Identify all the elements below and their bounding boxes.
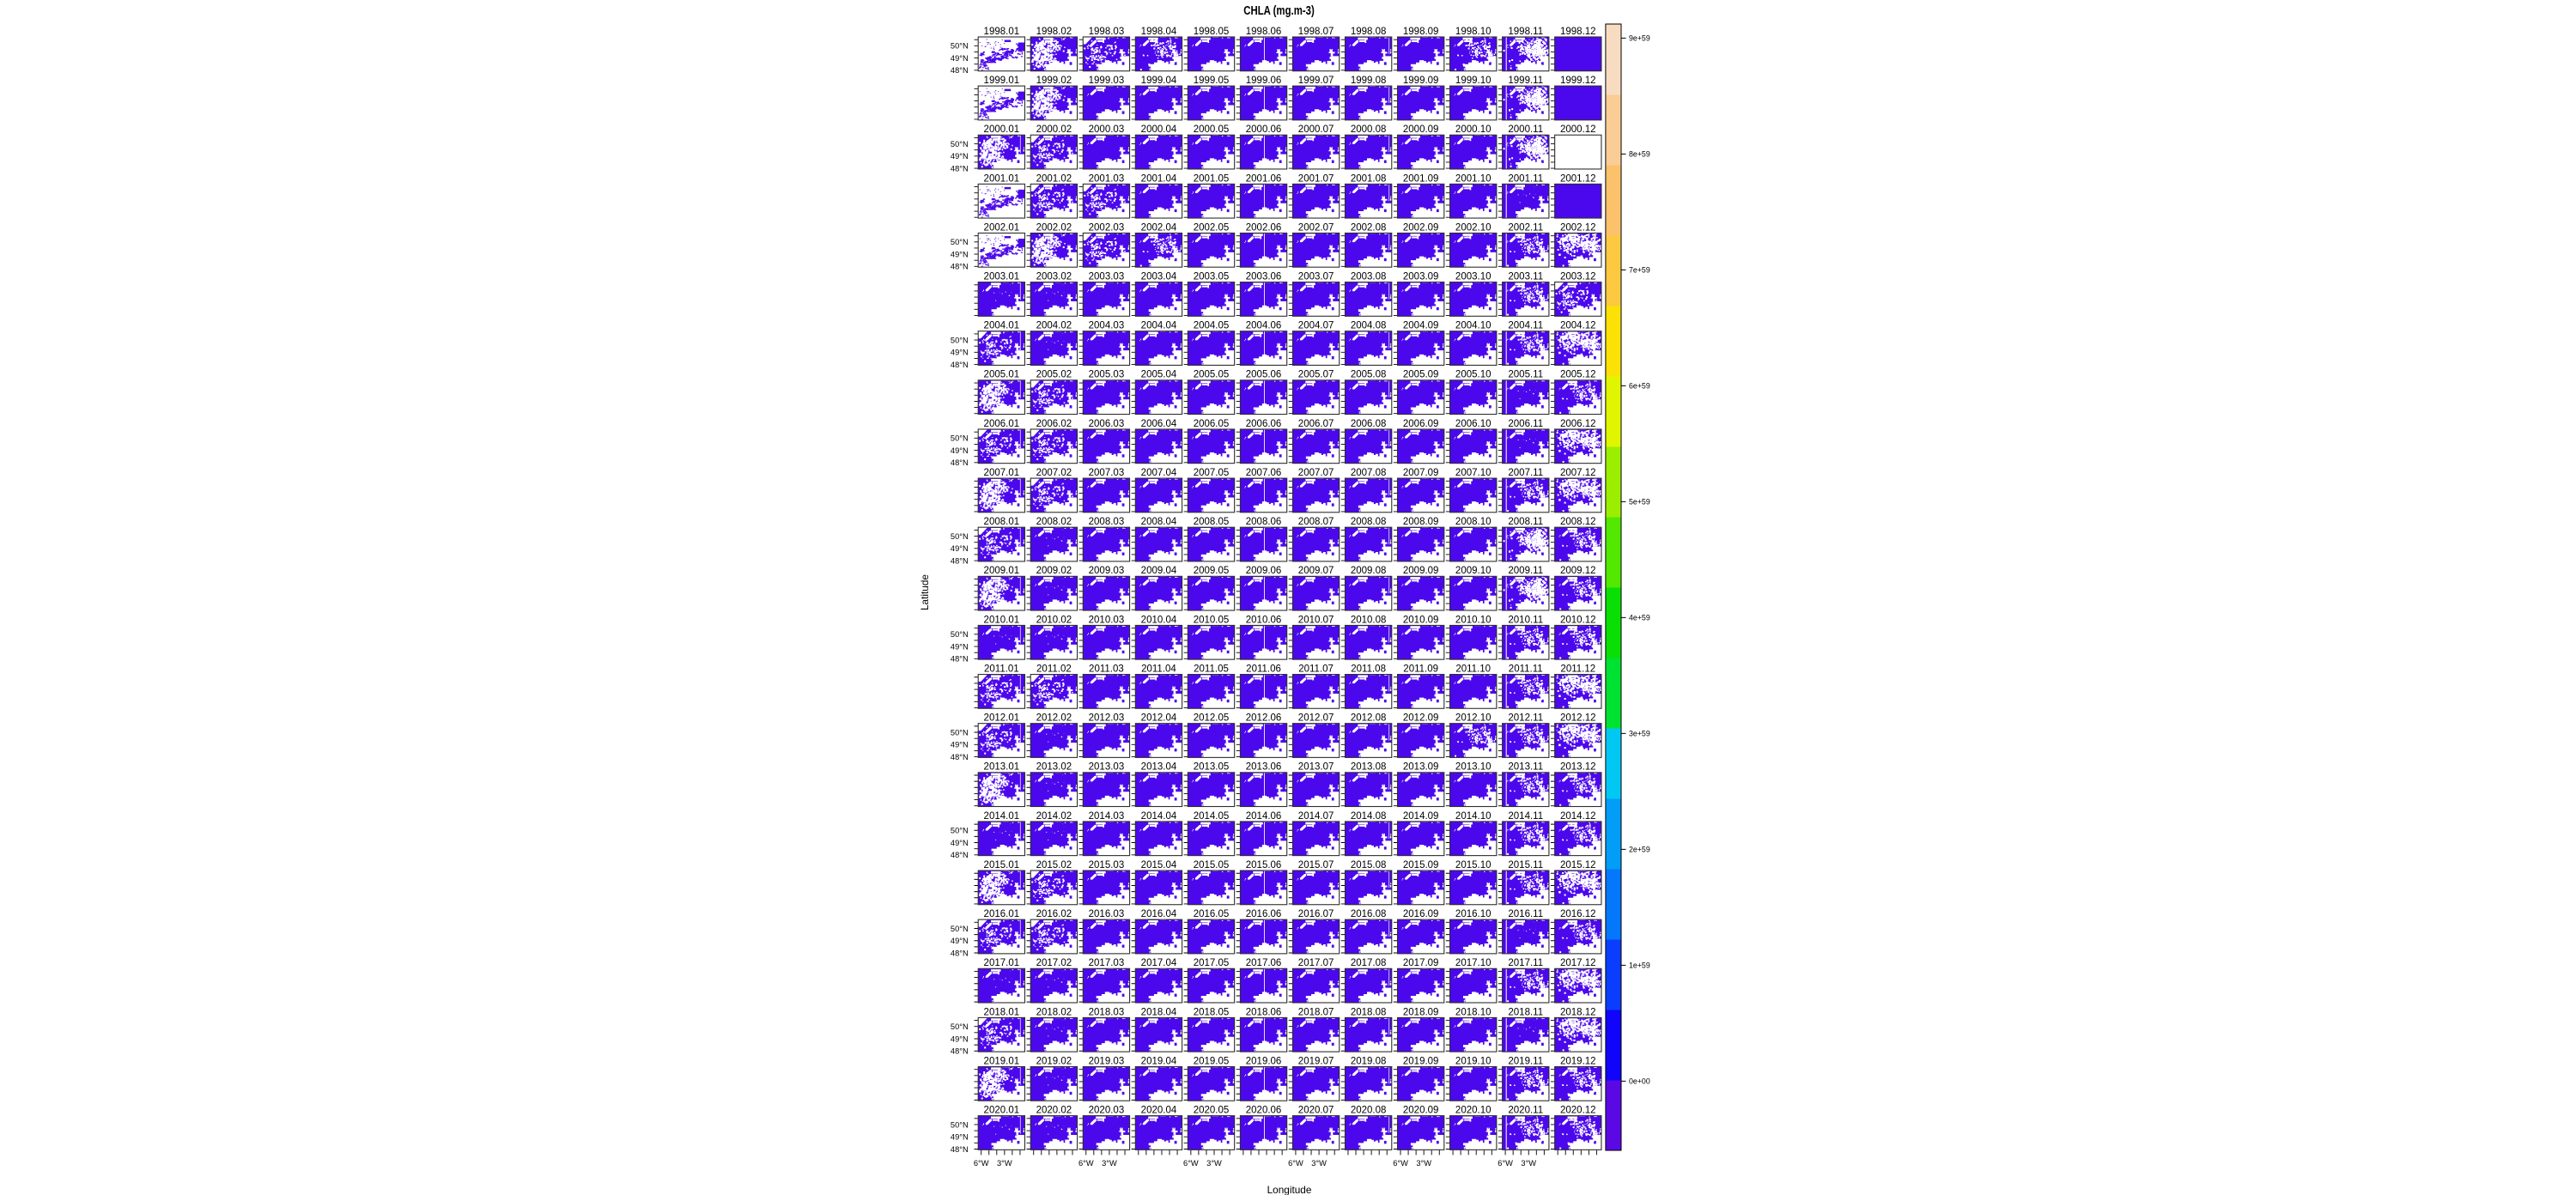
svg-text:2012.07: 2012.07 bbox=[1298, 713, 1334, 724]
svg-text:2011.01: 2011.01 bbox=[984, 664, 1019, 674]
svg-text:2011.04: 2011.04 bbox=[1141, 664, 1176, 674]
svg-text:2017.07: 2017.07 bbox=[1298, 958, 1334, 968]
svg-text:2006.02: 2006.02 bbox=[1036, 419, 1072, 429]
svg-text:2002.05: 2002.05 bbox=[1194, 222, 1230, 233]
svg-text:2008.07: 2008.07 bbox=[1298, 517, 1334, 527]
svg-text:2005.03: 2005.03 bbox=[1089, 370, 1125, 380]
svg-text:2006.03: 2006.03 bbox=[1089, 419, 1125, 429]
svg-text:1999.01: 1999.01 bbox=[984, 76, 1020, 86]
svg-text:2002.04: 2002.04 bbox=[1141, 222, 1177, 233]
svg-text:50°N: 50°N bbox=[951, 532, 969, 541]
svg-text:2006.07: 2006.07 bbox=[1298, 419, 1334, 429]
svg-text:2016.01: 2016.01 bbox=[984, 909, 1020, 919]
svg-text:0e+00: 0e+00 bbox=[1629, 1077, 1650, 1086]
svg-text:2012.05: 2012.05 bbox=[1194, 713, 1230, 724]
svg-text:2003.04: 2003.04 bbox=[1141, 272, 1177, 282]
svg-text:2010.05: 2010.05 bbox=[1194, 615, 1230, 625]
svg-text:2014.07: 2014.07 bbox=[1298, 811, 1334, 822]
svg-text:2000.01: 2000.01 bbox=[984, 124, 1020, 135]
svg-text:1999.12: 1999.12 bbox=[1560, 76, 1596, 86]
svg-text:1998.04: 1998.04 bbox=[1141, 27, 1177, 37]
svg-text:2017.01: 2017.01 bbox=[984, 958, 1020, 968]
svg-text:48°N: 48°N bbox=[951, 164, 969, 173]
svg-text:2009.01: 2009.01 bbox=[984, 566, 1020, 576]
svg-text:2005.10: 2005.10 bbox=[1455, 370, 1492, 380]
svg-text:2010.09: 2010.09 bbox=[1403, 615, 1439, 625]
svg-text:2013.10: 2013.10 bbox=[1455, 762, 1492, 773]
svg-text:2016.10: 2016.10 bbox=[1455, 909, 1492, 919]
svg-text:2003.01: 2003.01 bbox=[984, 272, 1020, 282]
svg-text:2007.04: 2007.04 bbox=[1141, 468, 1177, 478]
svg-text:2005.08: 2005.08 bbox=[1351, 370, 1387, 380]
svg-text:48°N: 48°N bbox=[951, 655, 969, 664]
svg-text:2001.07: 2001.07 bbox=[1298, 173, 1334, 184]
svg-text:48°N: 48°N bbox=[951, 458, 969, 467]
svg-text:2011.02: 2011.02 bbox=[1036, 664, 1072, 674]
svg-text:2004.08: 2004.08 bbox=[1351, 321, 1387, 331]
svg-text:2016.07: 2016.07 bbox=[1298, 909, 1334, 919]
svg-text:2004.02: 2004.02 bbox=[1036, 321, 1072, 331]
svg-text:2011.12: 2011.12 bbox=[1560, 664, 1595, 674]
svg-text:1999.03: 1999.03 bbox=[1089, 76, 1125, 86]
svg-text:2e+59: 2e+59 bbox=[1629, 846, 1650, 854]
svg-text:1998.05: 1998.05 bbox=[1194, 27, 1230, 37]
svg-text:2016.04: 2016.04 bbox=[1141, 909, 1177, 919]
svg-text:2019.05: 2019.05 bbox=[1194, 1056, 1230, 1066]
svg-text:2011.05: 2011.05 bbox=[1194, 664, 1229, 674]
svg-text:2012.02: 2012.02 bbox=[1036, 713, 1072, 724]
svg-text:2013.06: 2013.06 bbox=[1246, 762, 1282, 773]
svg-text:2006.11: 2006.11 bbox=[1508, 419, 1543, 429]
svg-text:2014.06: 2014.06 bbox=[1246, 811, 1282, 822]
svg-text:49°N: 49°N bbox=[951, 250, 969, 258]
svg-text:2019.10: 2019.10 bbox=[1455, 1056, 1492, 1066]
svg-text:2002.06: 2002.06 bbox=[1246, 222, 1282, 233]
svg-text:2012.01: 2012.01 bbox=[984, 713, 1020, 724]
svg-text:2007.10: 2007.10 bbox=[1455, 468, 1492, 478]
svg-text:1999.06: 1999.06 bbox=[1246, 76, 1282, 86]
svg-text:2001.05: 2001.05 bbox=[1194, 173, 1230, 184]
svg-text:2002.01: 2002.01 bbox=[984, 222, 1020, 233]
svg-text:2007.02: 2007.02 bbox=[1036, 468, 1072, 478]
svg-text:2015.08: 2015.08 bbox=[1351, 860, 1387, 870]
svg-text:2009.04: 2009.04 bbox=[1141, 566, 1177, 576]
svg-text:2010.11: 2010.11 bbox=[1508, 615, 1543, 625]
svg-text:1999.10: 1999.10 bbox=[1455, 76, 1492, 86]
svg-text:3e+59: 3e+59 bbox=[1629, 730, 1650, 738]
svg-text:2011.09: 2011.09 bbox=[1403, 664, 1438, 674]
svg-text:2012.11: 2012.11 bbox=[1508, 713, 1543, 724]
svg-text:49°N: 49°N bbox=[951, 1034, 969, 1043]
svg-text:49°N: 49°N bbox=[951, 1133, 969, 1142]
svg-text:50°N: 50°N bbox=[951, 434, 969, 443]
svg-text:2006.12: 2006.12 bbox=[1560, 419, 1596, 429]
svg-text:2011.08: 2011.08 bbox=[1351, 664, 1386, 674]
svg-text:1999.02: 1999.02 bbox=[1036, 76, 1072, 86]
svg-text:2020.04: 2020.04 bbox=[1141, 1106, 1177, 1116]
svg-text:2014.05: 2014.05 bbox=[1194, 811, 1230, 822]
svg-text:2009.07: 2009.07 bbox=[1298, 566, 1334, 576]
svg-text:2014.11: 2014.11 bbox=[1508, 811, 1543, 822]
svg-text:2001.06: 2001.06 bbox=[1246, 173, 1282, 184]
svg-text:2020.10: 2020.10 bbox=[1455, 1106, 1492, 1116]
svg-text:2016.06: 2016.06 bbox=[1246, 909, 1282, 919]
svg-text:2000.11: 2000.11 bbox=[1508, 124, 1543, 135]
svg-text:2009.06: 2009.06 bbox=[1246, 566, 1282, 576]
svg-text:2004.01: 2004.01 bbox=[984, 321, 1020, 331]
svg-text:2001.04: 2001.04 bbox=[1141, 173, 1177, 184]
svg-text:2019.03: 2019.03 bbox=[1089, 1056, 1125, 1066]
svg-text:2014.04: 2014.04 bbox=[1141, 811, 1177, 822]
svg-text:2004.03: 2004.03 bbox=[1089, 321, 1125, 331]
svg-text:3°W: 3°W bbox=[1311, 1159, 1327, 1168]
svg-text:2008.02: 2008.02 bbox=[1036, 517, 1072, 527]
svg-text:2010.02: 2010.02 bbox=[1036, 615, 1072, 625]
svg-text:2016.02: 2016.02 bbox=[1036, 909, 1072, 919]
svg-text:2012.12: 2012.12 bbox=[1560, 713, 1596, 724]
svg-text:3°W: 3°W bbox=[1416, 1159, 1431, 1168]
svg-text:2001.12: 2001.12 bbox=[1560, 173, 1596, 184]
svg-text:2017.03: 2017.03 bbox=[1089, 958, 1125, 968]
svg-text:2007.11: 2007.11 bbox=[1508, 468, 1543, 478]
svg-text:2018.02: 2018.02 bbox=[1036, 1007, 1072, 1017]
svg-text:2020.11: 2020.11 bbox=[1508, 1106, 1543, 1116]
svg-text:2017.02: 2017.02 bbox=[1036, 958, 1072, 968]
svg-text:2012.03: 2012.03 bbox=[1089, 713, 1125, 724]
svg-text:2019.08: 2019.08 bbox=[1351, 1056, 1387, 1066]
svg-text:2018.10: 2018.10 bbox=[1455, 1007, 1492, 1017]
svg-text:49°N: 49°N bbox=[951, 642, 969, 651]
svg-text:2020.03: 2020.03 bbox=[1089, 1106, 1125, 1116]
svg-text:2014.08: 2014.08 bbox=[1351, 811, 1387, 822]
svg-text:2018.09: 2018.09 bbox=[1403, 1007, 1439, 1017]
svg-text:2018.03: 2018.03 bbox=[1089, 1007, 1125, 1017]
svg-text:2004.09: 2004.09 bbox=[1403, 321, 1439, 331]
svg-text:2015.12: 2015.12 bbox=[1560, 860, 1596, 870]
svg-text:2007.12: 2007.12 bbox=[1560, 468, 1596, 478]
svg-text:2014.01: 2014.01 bbox=[984, 811, 1020, 822]
svg-text:2013.08: 2013.08 bbox=[1351, 762, 1387, 773]
svg-text:2008.04: 2008.04 bbox=[1141, 517, 1177, 527]
svg-text:2009.10: 2009.10 bbox=[1455, 566, 1492, 576]
svg-text:50°N: 50°N bbox=[951, 630, 969, 639]
svg-text:2010.06: 2010.06 bbox=[1246, 615, 1282, 625]
svg-text:2015.07: 2015.07 bbox=[1298, 860, 1334, 870]
svg-text:2004.07: 2004.07 bbox=[1298, 321, 1334, 331]
svg-text:2013.01: 2013.01 bbox=[984, 762, 1020, 773]
svg-text:2007.08: 2007.08 bbox=[1351, 468, 1387, 478]
svg-text:48°N: 48°N bbox=[951, 66, 969, 75]
svg-text:2016.08: 2016.08 bbox=[1351, 909, 1387, 919]
svg-text:2015.04: 2015.04 bbox=[1141, 860, 1177, 870]
svg-text:2016.05: 2016.05 bbox=[1194, 909, 1230, 919]
svg-text:2007.05: 2007.05 bbox=[1194, 468, 1230, 478]
svg-text:2006.09: 2006.09 bbox=[1403, 419, 1439, 429]
svg-text:2015.10: 2015.10 bbox=[1455, 860, 1492, 870]
svg-text:2002.02: 2002.02 bbox=[1036, 222, 1072, 233]
svg-text:2005.12: 2005.12 bbox=[1560, 370, 1596, 380]
svg-text:2006.06: 2006.06 bbox=[1246, 419, 1282, 429]
svg-text:2001.11: 2001.11 bbox=[1508, 173, 1543, 184]
svg-text:2013.12: 2013.12 bbox=[1560, 762, 1596, 773]
svg-text:50°N: 50°N bbox=[951, 925, 969, 933]
svg-text:2000.08: 2000.08 bbox=[1351, 124, 1387, 135]
svg-text:1999.04: 1999.04 bbox=[1141, 76, 1177, 86]
svg-text:2000.05: 2000.05 bbox=[1194, 124, 1230, 135]
svg-text:2010.12: 2010.12 bbox=[1560, 615, 1596, 625]
svg-text:2014.03: 2014.03 bbox=[1089, 811, 1125, 822]
svg-text:2013.07: 2013.07 bbox=[1298, 762, 1334, 773]
svg-text:2007.03: 2007.03 bbox=[1089, 468, 1125, 478]
svg-text:2018.12: 2018.12 bbox=[1560, 1007, 1596, 1017]
svg-text:2009.05: 2009.05 bbox=[1194, 566, 1230, 576]
svg-text:2015.01: 2015.01 bbox=[984, 860, 1020, 870]
svg-text:2009.03: 2009.03 bbox=[1089, 566, 1125, 576]
svg-text:2020.12: 2020.12 bbox=[1560, 1106, 1596, 1116]
svg-text:2010.08: 2010.08 bbox=[1351, 615, 1387, 625]
svg-text:48°N: 48°N bbox=[951, 949, 969, 957]
svg-text:2017.10: 2017.10 bbox=[1455, 958, 1492, 968]
svg-text:2003.08: 2003.08 bbox=[1351, 272, 1387, 282]
svg-text:2009.12: 2009.12 bbox=[1560, 566, 1596, 576]
svg-text:2013.11: 2013.11 bbox=[1508, 762, 1543, 773]
svg-text:2013.09: 2013.09 bbox=[1403, 762, 1439, 773]
svg-text:2004.04: 2004.04 bbox=[1141, 321, 1177, 331]
svg-text:2004.12: 2004.12 bbox=[1560, 321, 1596, 331]
svg-text:2001.08: 2001.08 bbox=[1351, 173, 1387, 184]
svg-text:6°W: 6°W bbox=[1183, 1159, 1199, 1168]
svg-text:2005.11: 2005.11 bbox=[1508, 370, 1543, 380]
svg-text:2010.10: 2010.10 bbox=[1455, 615, 1492, 625]
svg-text:2007.07: 2007.07 bbox=[1298, 468, 1334, 478]
svg-text:2003.06: 2003.06 bbox=[1246, 272, 1282, 282]
svg-text:2004.06: 2004.06 bbox=[1246, 321, 1282, 331]
svg-text:2014.09: 2014.09 bbox=[1403, 811, 1439, 822]
svg-text:2020.09: 2020.09 bbox=[1403, 1106, 1439, 1116]
svg-text:1998.12: 1998.12 bbox=[1560, 27, 1596, 37]
svg-text:2008.03: 2008.03 bbox=[1089, 517, 1125, 527]
svg-text:2008.09: 2008.09 bbox=[1403, 517, 1439, 527]
svg-text:48°N: 48°N bbox=[951, 556, 969, 565]
svg-text:2004.05: 2004.05 bbox=[1194, 321, 1230, 331]
svg-text:2001.01: 2001.01 bbox=[984, 173, 1020, 184]
svg-text:6°W: 6°W bbox=[1288, 1159, 1303, 1168]
svg-text:2012.08: 2012.08 bbox=[1351, 713, 1387, 724]
svg-text:1998.06: 1998.06 bbox=[1246, 27, 1282, 37]
svg-text:2013.05: 2013.05 bbox=[1194, 762, 1230, 773]
svg-text:2005.07: 2005.07 bbox=[1298, 370, 1334, 380]
svg-text:2000.04: 2000.04 bbox=[1141, 124, 1177, 135]
svg-text:2001.10: 2001.10 bbox=[1455, 173, 1492, 184]
svg-text:2000.12: 2000.12 bbox=[1560, 124, 1596, 135]
svg-text:2017.04: 2017.04 bbox=[1141, 958, 1177, 968]
svg-text:2014.02: 2014.02 bbox=[1036, 811, 1072, 822]
svg-text:2008.06: 2008.06 bbox=[1246, 517, 1282, 527]
svg-text:2015.03: 2015.03 bbox=[1089, 860, 1125, 870]
svg-text:3°W: 3°W bbox=[1102, 1159, 1117, 1168]
svg-text:2007.09: 2007.09 bbox=[1403, 468, 1439, 478]
svg-text:2010.07: 2010.07 bbox=[1298, 615, 1334, 625]
svg-text:50°N: 50°N bbox=[951, 140, 969, 149]
svg-text:2020.05: 2020.05 bbox=[1194, 1106, 1230, 1116]
svg-text:49°N: 49°N bbox=[951, 152, 969, 161]
svg-text:3°W: 3°W bbox=[1521, 1159, 1536, 1168]
svg-text:2019.09: 2019.09 bbox=[1403, 1056, 1439, 1066]
svg-text:6°W: 6°W bbox=[1078, 1159, 1094, 1168]
svg-text:2011.06: 2011.06 bbox=[1246, 664, 1281, 674]
svg-text:2017.05: 2017.05 bbox=[1194, 958, 1230, 968]
svg-text:2005.05: 2005.05 bbox=[1194, 370, 1230, 380]
svg-text:2017.06: 2017.06 bbox=[1246, 958, 1282, 968]
svg-text:49°N: 49°N bbox=[951, 544, 969, 553]
svg-text:2020.06: 2020.06 bbox=[1246, 1106, 1282, 1116]
svg-text:2005.01: 2005.01 bbox=[984, 370, 1020, 380]
svg-text:2019.11: 2019.11 bbox=[1508, 1056, 1543, 1066]
svg-text:2020.08: 2020.08 bbox=[1351, 1106, 1387, 1116]
svg-text:2015.11: 2015.11 bbox=[1508, 860, 1543, 870]
svg-text:2004.11: 2004.11 bbox=[1508, 321, 1543, 331]
svg-text:2018.05: 2018.05 bbox=[1194, 1007, 1230, 1017]
svg-text:2008.01: 2008.01 bbox=[984, 517, 1020, 527]
svg-text:49°N: 49°N bbox=[951, 839, 969, 847]
svg-text:9e+59: 9e+59 bbox=[1629, 34, 1650, 43]
svg-text:2015.02: 2015.02 bbox=[1036, 860, 1072, 870]
svg-text:2016.03: 2016.03 bbox=[1089, 909, 1125, 919]
svg-text:2003.02: 2003.02 bbox=[1036, 272, 1072, 282]
svg-text:2003.10: 2003.10 bbox=[1455, 272, 1492, 282]
svg-text:50°N: 50°N bbox=[951, 728, 969, 737]
svg-text:2017.08: 2017.08 bbox=[1351, 958, 1387, 968]
svg-text:3°W: 3°W bbox=[997, 1159, 1012, 1168]
svg-text:1998.02: 1998.02 bbox=[1036, 27, 1072, 37]
svg-text:2014.10: 2014.10 bbox=[1455, 811, 1492, 822]
svg-text:50°N: 50°N bbox=[951, 336, 969, 344]
svg-text:2009.02: 2009.02 bbox=[1036, 566, 1072, 576]
svg-text:2018.08: 2018.08 bbox=[1351, 1007, 1387, 1017]
svg-text:49°N: 49°N bbox=[951, 446, 969, 455]
svg-text:49°N: 49°N bbox=[951, 349, 969, 357]
svg-text:2009.11: 2009.11 bbox=[1508, 566, 1543, 576]
svg-text:2004.10: 2004.10 bbox=[1455, 321, 1492, 331]
svg-text:50°N: 50°N bbox=[951, 1022, 969, 1031]
svg-text:2013.03: 2013.03 bbox=[1089, 762, 1125, 773]
svg-text:2000.06: 2000.06 bbox=[1246, 124, 1282, 135]
svg-text:2003.11: 2003.11 bbox=[1508, 272, 1543, 282]
svg-text:2000.10: 2000.10 bbox=[1455, 124, 1492, 135]
svg-text:2018.06: 2018.06 bbox=[1246, 1007, 1282, 1017]
svg-text:50°N: 50°N bbox=[951, 238, 969, 246]
svg-text:2010.04: 2010.04 bbox=[1141, 615, 1177, 625]
svg-text:2016.12: 2016.12 bbox=[1560, 909, 1596, 919]
svg-text:2019.06: 2019.06 bbox=[1246, 1056, 1282, 1066]
svg-text:1999.05: 1999.05 bbox=[1194, 76, 1230, 86]
svg-text:2019.04: 2019.04 bbox=[1141, 1056, 1177, 1066]
svg-text:1999.07: 1999.07 bbox=[1298, 76, 1334, 86]
svg-text:2019.02: 2019.02 bbox=[1036, 1056, 1072, 1066]
svg-text:2008.08: 2008.08 bbox=[1351, 517, 1387, 527]
svg-text:2012.10: 2012.10 bbox=[1455, 713, 1492, 724]
svg-text:49°N: 49°N bbox=[951, 937, 969, 945]
svg-text:2020.07: 2020.07 bbox=[1298, 1106, 1334, 1116]
svg-text:5e+59: 5e+59 bbox=[1629, 498, 1650, 507]
svg-text:48°N: 48°N bbox=[951, 1145, 969, 1154]
svg-text:7e+59: 7e+59 bbox=[1629, 266, 1650, 275]
svg-text:6°W: 6°W bbox=[1393, 1159, 1408, 1168]
svg-text:4e+59: 4e+59 bbox=[1629, 614, 1650, 622]
svg-text:CHLA (mg.m-3): CHLA (mg.m-3) bbox=[1243, 4, 1315, 18]
svg-text:2018.11: 2018.11 bbox=[1508, 1007, 1543, 1017]
svg-text:2012.09: 2012.09 bbox=[1403, 713, 1439, 724]
svg-text:2002.09: 2002.09 bbox=[1403, 222, 1439, 233]
svg-text:2018.01: 2018.01 bbox=[984, 1007, 1020, 1017]
svg-text:2020.02: 2020.02 bbox=[1036, 1106, 1072, 1116]
svg-text:2019.12: 2019.12 bbox=[1560, 1056, 1596, 1066]
svg-text:2001.09: 2001.09 bbox=[1403, 173, 1439, 184]
svg-text:50°N: 50°N bbox=[951, 1120, 969, 1129]
svg-text:2017.11: 2017.11 bbox=[1508, 958, 1543, 968]
svg-text:1998.03: 1998.03 bbox=[1089, 27, 1125, 37]
svg-text:1999.08: 1999.08 bbox=[1351, 76, 1387, 86]
svg-text:2007.01: 2007.01 bbox=[984, 468, 1020, 478]
svg-text:2011.03: 2011.03 bbox=[1089, 664, 1124, 674]
svg-text:2000.02: 2000.02 bbox=[1036, 124, 1072, 135]
svg-text:50°N: 50°N bbox=[951, 827, 969, 835]
svg-text:6°W: 6°W bbox=[974, 1159, 989, 1168]
svg-text:2008.05: 2008.05 bbox=[1194, 517, 1230, 527]
svg-text:2005.02: 2005.02 bbox=[1036, 370, 1072, 380]
svg-text:2020.01: 2020.01 bbox=[984, 1106, 1020, 1116]
svg-text:2006.10: 2006.10 bbox=[1455, 419, 1492, 429]
svg-text:2002.07: 2002.07 bbox=[1298, 222, 1334, 233]
svg-text:2000.09: 2000.09 bbox=[1403, 124, 1439, 135]
svg-text:2005.06: 2005.06 bbox=[1246, 370, 1282, 380]
svg-text:1998.07: 1998.07 bbox=[1298, 27, 1334, 37]
svg-text:50°N: 50°N bbox=[951, 42, 969, 51]
svg-text:48°N: 48°N bbox=[951, 753, 969, 761]
svg-text:2009.08: 2009.08 bbox=[1351, 566, 1387, 576]
svg-text:2011.10: 2011.10 bbox=[1455, 664, 1491, 674]
svg-text:2001.02: 2001.02 bbox=[1036, 173, 1072, 184]
svg-text:2019.07: 2019.07 bbox=[1298, 1056, 1334, 1066]
svg-text:2011.11: 2011.11 bbox=[1509, 664, 1543, 674]
svg-text:2017.09: 2017.09 bbox=[1403, 958, 1439, 968]
svg-text:2015.09: 2015.09 bbox=[1403, 860, 1439, 870]
svg-text:8e+59: 8e+59 bbox=[1629, 150, 1650, 159]
svg-text:2010.03: 2010.03 bbox=[1089, 615, 1125, 625]
svg-text:2003.05: 2003.05 bbox=[1194, 272, 1230, 282]
svg-text:Longitude: Longitude bbox=[1267, 1184, 1312, 1195]
svg-text:2007.06: 2007.06 bbox=[1246, 468, 1282, 478]
svg-text:48°N: 48°N bbox=[951, 263, 969, 271]
svg-text:2015.05: 2015.05 bbox=[1194, 860, 1230, 870]
svg-text:2016.09: 2016.09 bbox=[1403, 909, 1439, 919]
svg-text:2002.12: 2002.12 bbox=[1560, 222, 1596, 233]
svg-text:48°N: 48°N bbox=[951, 851, 969, 859]
svg-text:2014.12: 2014.12 bbox=[1560, 811, 1596, 822]
svg-text:1998.01: 1998.01 bbox=[984, 27, 1020, 37]
svg-text:2008.12: 2008.12 bbox=[1560, 517, 1596, 527]
svg-text:2003.07: 2003.07 bbox=[1298, 272, 1334, 282]
svg-text:2000.03: 2000.03 bbox=[1089, 124, 1125, 135]
svg-text:Latitude: Latitude bbox=[919, 574, 931, 610]
svg-text:1998.10: 1998.10 bbox=[1455, 27, 1492, 37]
svg-text:48°N: 48°N bbox=[951, 361, 969, 369]
svg-text:2005.04: 2005.04 bbox=[1141, 370, 1177, 380]
svg-text:2006.08: 2006.08 bbox=[1351, 419, 1387, 429]
svg-text:2003.09: 2003.09 bbox=[1403, 272, 1439, 282]
svg-text:49°N: 49°N bbox=[951, 54, 969, 63]
svg-text:2012.04: 2012.04 bbox=[1141, 713, 1177, 724]
